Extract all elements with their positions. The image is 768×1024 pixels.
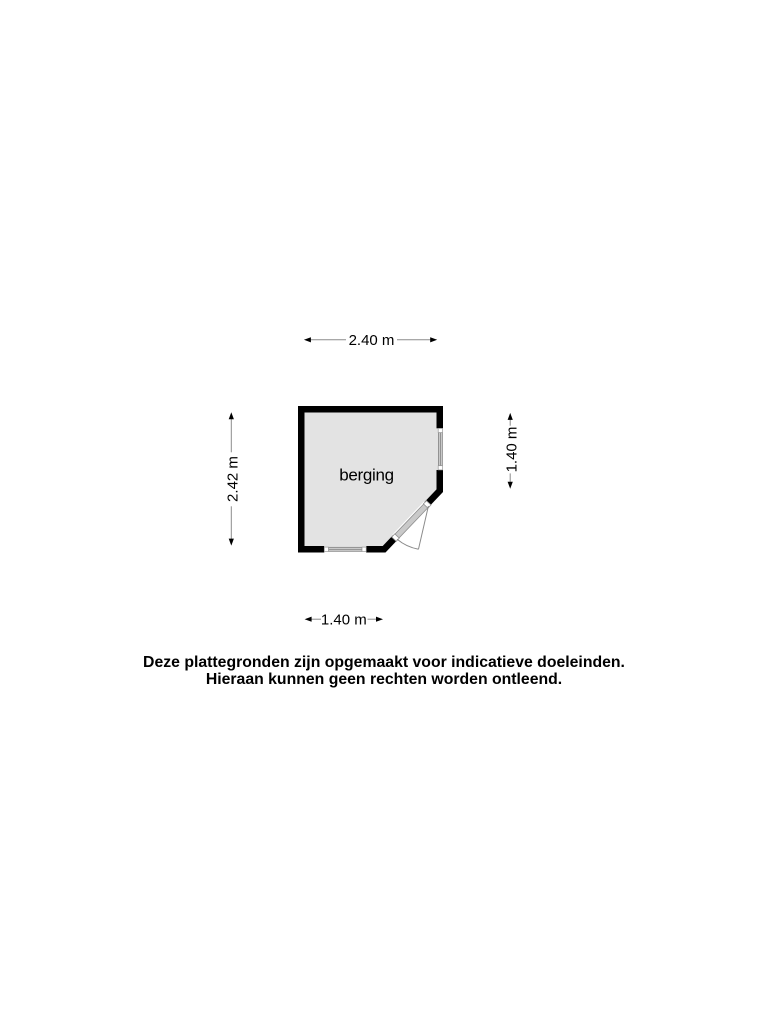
svg-text:berging: berging xyxy=(339,466,394,485)
svg-text:1.40 m: 1.40 m xyxy=(503,427,520,473)
svg-text:2.40 m: 2.40 m xyxy=(349,332,395,349)
svg-text:2.42 m: 2.42 m xyxy=(225,456,242,502)
svg-text:1.40 m: 1.40 m xyxy=(321,611,367,628)
